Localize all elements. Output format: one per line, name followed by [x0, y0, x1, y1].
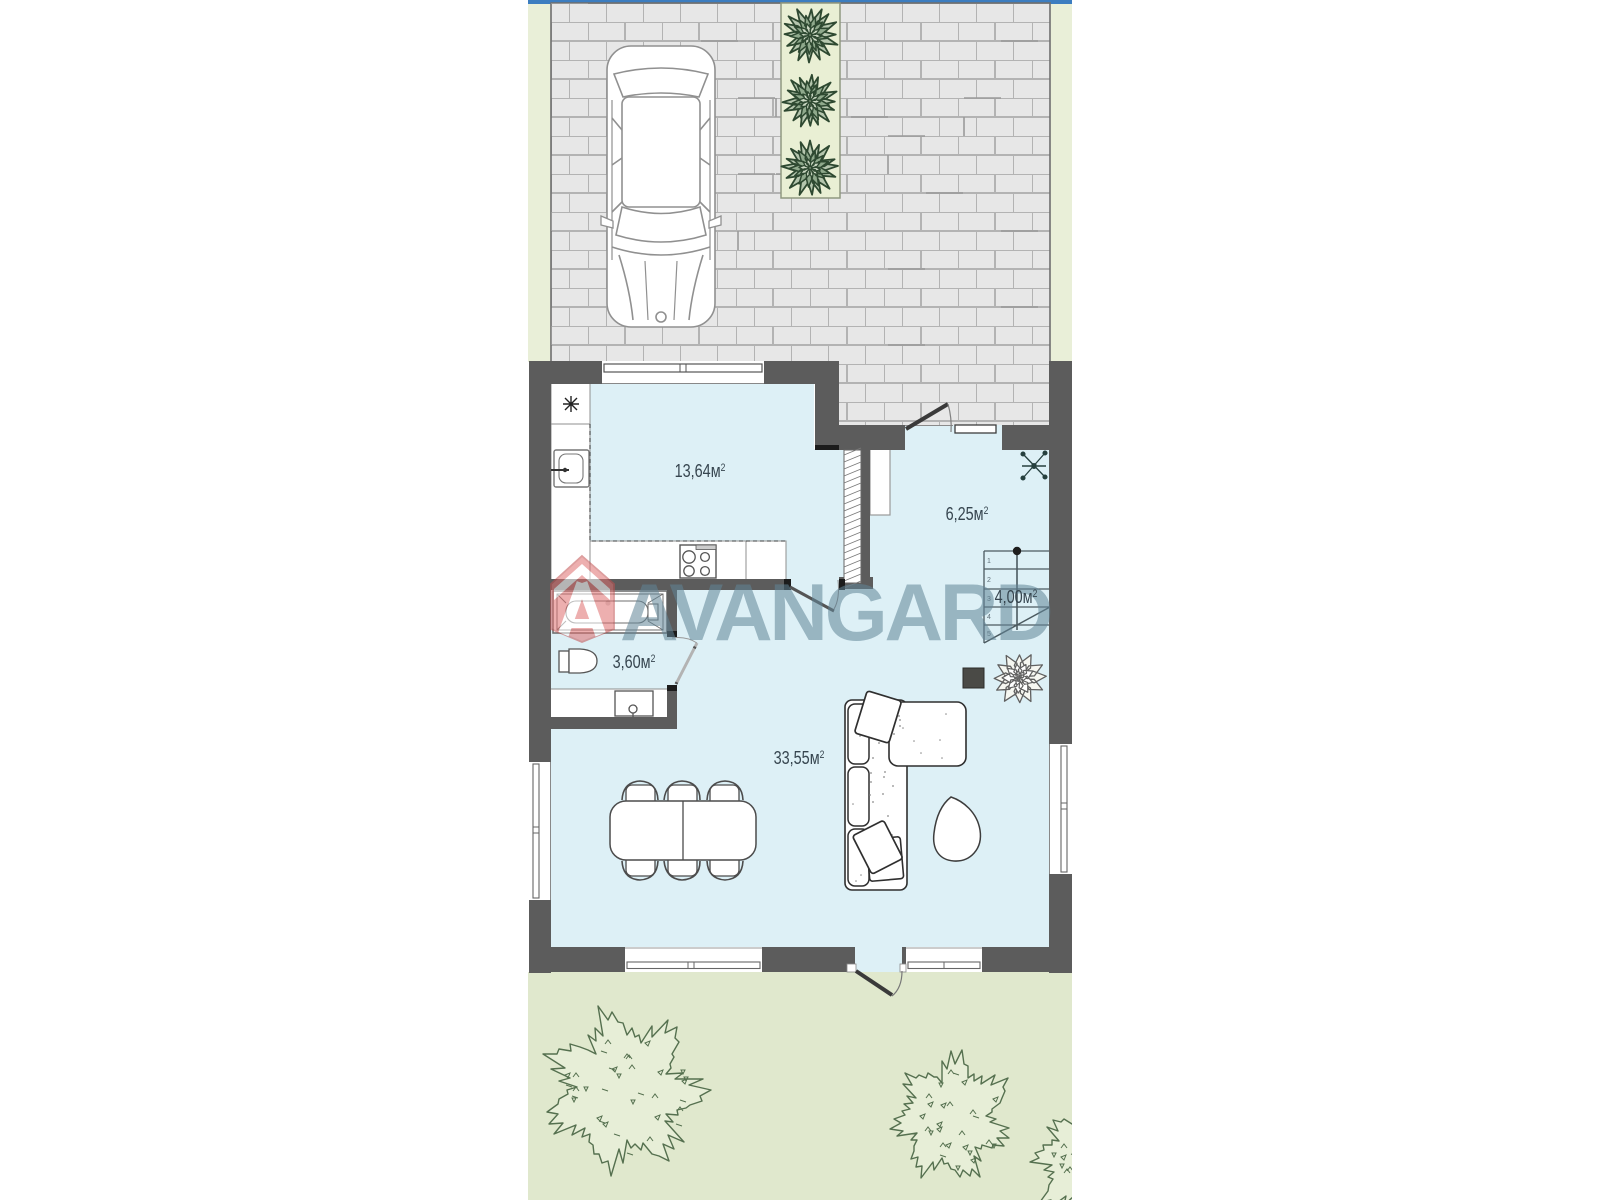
- svg-text:33,55м2: 33,55м2: [774, 747, 825, 768]
- svg-text:6,25м2: 6,25м2: [946, 503, 989, 524]
- svg-text:AVANGARD: AVANGARD: [620, 568, 1051, 658]
- svg-text:13,64м2: 13,64м2: [675, 460, 726, 481]
- svg-text:4,00м2: 4,00м2: [995, 586, 1038, 607]
- svg-text:3,60м2: 3,60м2: [613, 651, 656, 672]
- svg-text:1: 1: [987, 558, 991, 565]
